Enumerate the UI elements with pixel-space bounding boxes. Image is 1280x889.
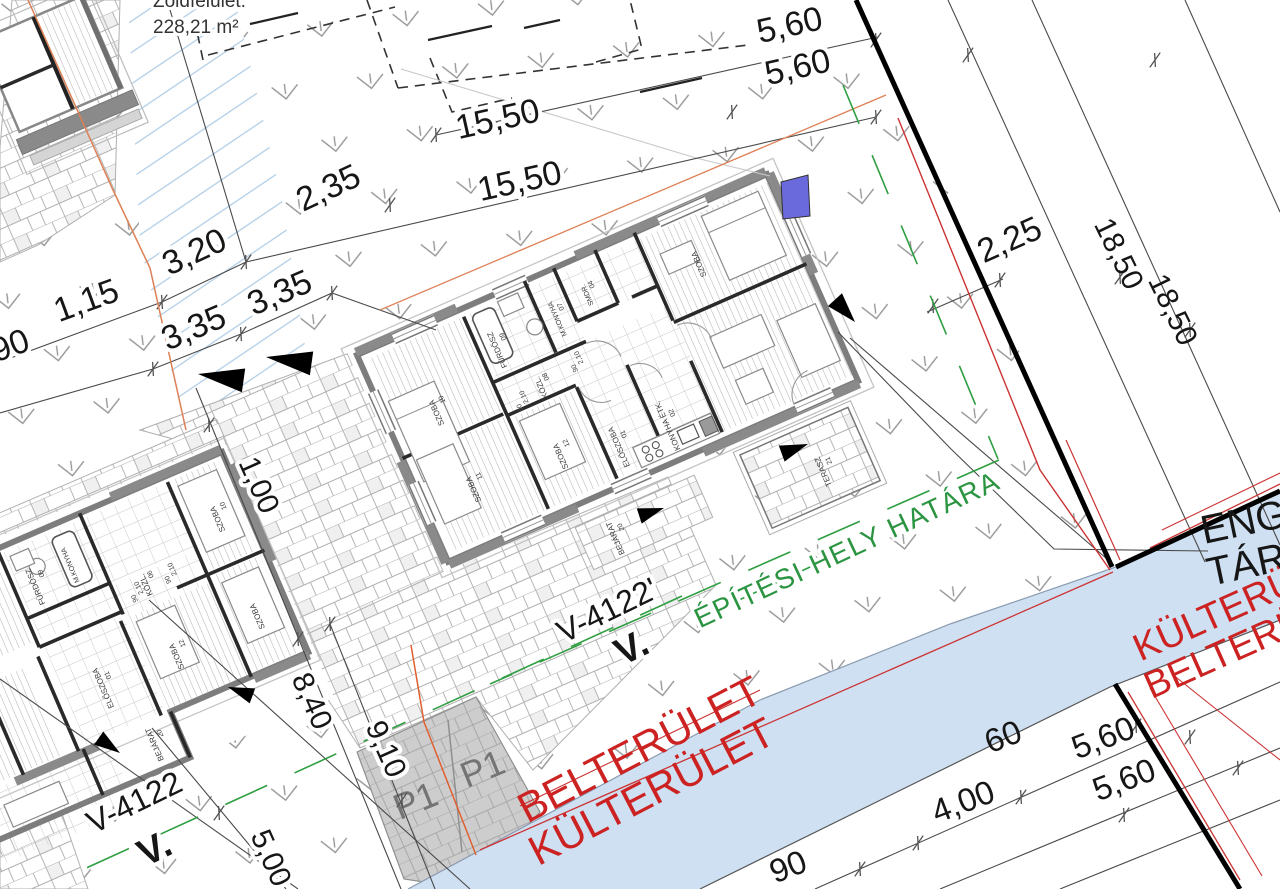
svg-text:Zöldfelület:: Zöldfelület:	[153, 0, 246, 12]
svg-text:228,21 m²: 228,21 m²	[153, 17, 239, 38]
